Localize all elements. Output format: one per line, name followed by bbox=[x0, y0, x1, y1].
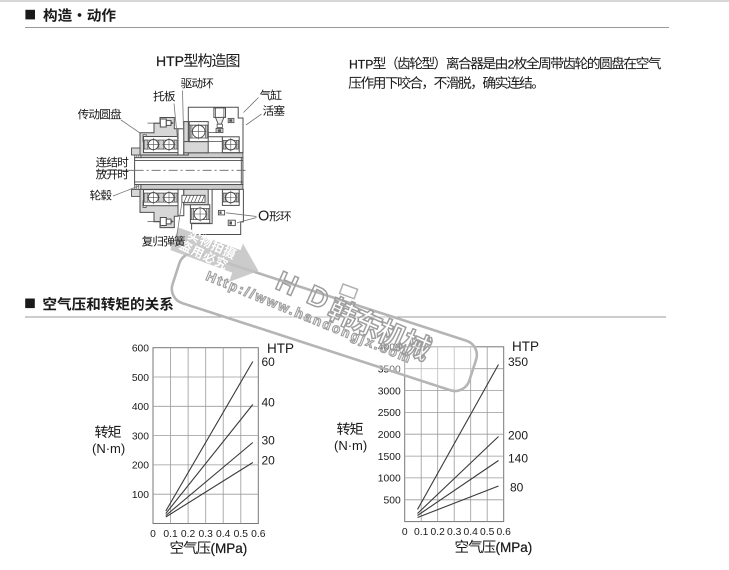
svg-text:200: 200 bbox=[132, 461, 149, 472]
svg-text:300: 300 bbox=[132, 431, 149, 442]
svg-text:HTP: HTP bbox=[349, 57, 373, 71]
svg-text:30: 30 bbox=[262, 434, 276, 448]
svg-text:20: 20 bbox=[262, 454, 276, 468]
svg-text:0.5: 0.5 bbox=[480, 527, 495, 538]
svg-text:600: 600 bbox=[132, 344, 149, 355]
svg-text:100: 100 bbox=[132, 490, 149, 501]
svg-text:0: 0 bbox=[150, 529, 156, 540]
svg-text:0.6: 0.6 bbox=[497, 527, 512, 538]
svg-text:(MPa): (MPa) bbox=[211, 541, 248, 556]
svg-text:0: 0 bbox=[402, 527, 408, 538]
svg-text:500: 500 bbox=[132, 373, 149, 384]
svg-text:350: 350 bbox=[508, 355, 528, 369]
svg-text:0.2: 0.2 bbox=[181, 529, 196, 540]
svg-text:0.1: 0.1 bbox=[163, 529, 178, 540]
svg-text:3000: 3000 bbox=[378, 386, 401, 397]
svg-text:0.3: 0.3 bbox=[447, 527, 462, 538]
svg-text:(N·m): (N·m) bbox=[92, 441, 125, 456]
svg-text:80: 80 bbox=[510, 481, 524, 495]
svg-text:1500: 1500 bbox=[378, 452, 401, 463]
svg-text:HTP: HTP bbox=[156, 53, 184, 69]
svg-text:0.4: 0.4 bbox=[216, 529, 231, 540]
svg-text:140: 140 bbox=[508, 452, 528, 466]
svg-text:0.2: 0.2 bbox=[431, 527, 446, 538]
svg-text:0.1: 0.1 bbox=[414, 527, 429, 538]
svg-text:500: 500 bbox=[384, 496, 401, 507]
svg-text:0.6: 0.6 bbox=[251, 529, 266, 540]
svg-text:(MPa): (MPa) bbox=[496, 540, 533, 555]
svg-text:2500: 2500 bbox=[378, 408, 401, 419]
svg-text:0.4: 0.4 bbox=[464, 527, 479, 538]
svg-text:2000: 2000 bbox=[378, 430, 401, 441]
svg-text:0.3: 0.3 bbox=[199, 529, 214, 540]
svg-text:40: 40 bbox=[262, 396, 276, 410]
svg-text:HTP: HTP bbox=[267, 341, 294, 356]
svg-text:0.5: 0.5 bbox=[234, 529, 249, 540]
svg-text:2: 2 bbox=[508, 57, 515, 71]
svg-text:60: 60 bbox=[262, 355, 276, 369]
svg-text:400: 400 bbox=[132, 402, 149, 413]
svg-text:HTP: HTP bbox=[512, 339, 539, 354]
svg-text:O: O bbox=[258, 209, 269, 225]
svg-text:1000: 1000 bbox=[378, 474, 401, 485]
svg-text:200: 200 bbox=[508, 429, 528, 443]
svg-text:(N·m): (N·m) bbox=[334, 438, 367, 453]
